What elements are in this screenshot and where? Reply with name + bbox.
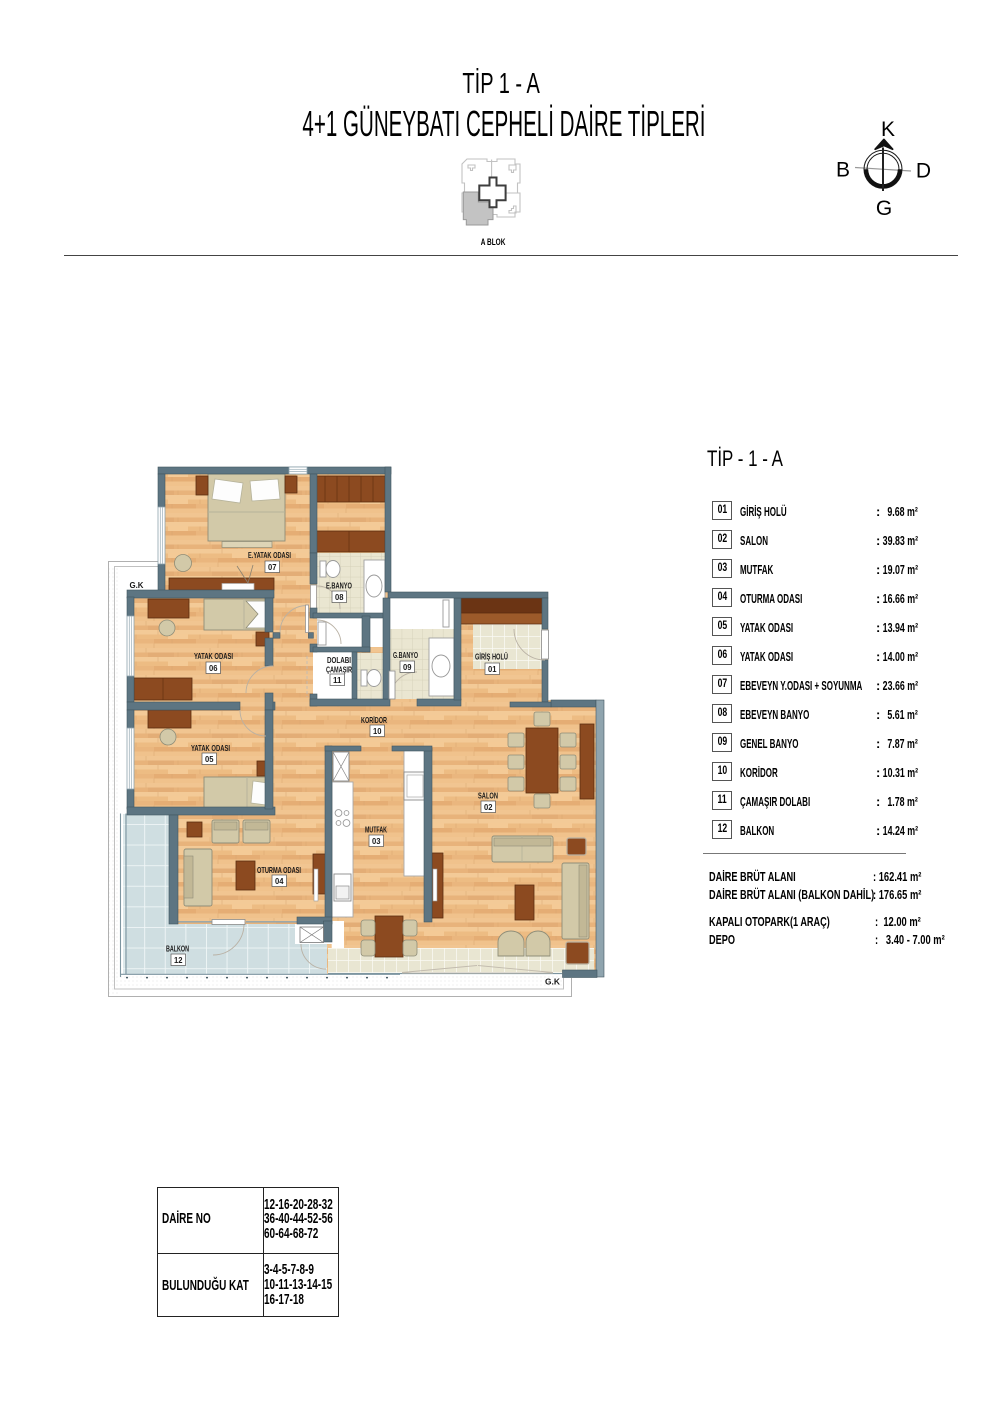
svg-text:E.BANYO: E.BANYO bbox=[326, 581, 352, 591]
svg-text:G.K: G.K bbox=[130, 580, 145, 590]
svg-text:10: 10 bbox=[373, 727, 382, 736]
svg-text:G.K: G.K bbox=[545, 977, 561, 987]
svg-text:MUTFAK: MUTFAK bbox=[365, 825, 388, 835]
svg-text:YATAK ODASI: YATAK ODASI bbox=[194, 651, 233, 661]
svg-text:KORİDOR: KORİDOR bbox=[361, 715, 387, 725]
svg-text:07: 07 bbox=[268, 563, 277, 572]
svg-text:01: 01 bbox=[488, 665, 497, 674]
svg-text:DOLABI: DOLABI bbox=[327, 655, 351, 665]
svg-text:08: 08 bbox=[335, 593, 344, 602]
svg-text:B: B bbox=[836, 159, 850, 182]
svg-text:11: 11 bbox=[333, 676, 342, 685]
svg-text:K: K bbox=[881, 118, 895, 141]
svg-text:E.YATAK ODASI: E.YATAK ODASI bbox=[248, 550, 291, 560]
svg-text:04: 04 bbox=[275, 877, 284, 886]
svg-text:D: D bbox=[916, 160, 931, 183]
svg-text:09: 09 bbox=[403, 663, 412, 672]
svg-text:05: 05 bbox=[205, 755, 214, 764]
svg-text:12: 12 bbox=[174, 956, 183, 965]
svg-text:G: G bbox=[876, 197, 892, 220]
svg-text:GİRİŞ HOLÜ: GİRİŞ HOLÜ bbox=[475, 652, 508, 662]
svg-text:03: 03 bbox=[372, 837, 381, 846]
svg-text:G.BANYO: G.BANYO bbox=[393, 650, 418, 660]
svg-text:OTURMA ODASI: OTURMA ODASI bbox=[257, 865, 301, 875]
svg-text:BALKON: BALKON bbox=[166, 944, 189, 954]
svg-text:ÇAMAŞIR: ÇAMAŞIR bbox=[326, 665, 352, 675]
svg-text:YATAK ODASI: YATAK ODASI bbox=[191, 743, 230, 753]
svg-text:02: 02 bbox=[484, 803, 493, 812]
svg-text:06: 06 bbox=[209, 664, 218, 673]
svg-text:SALON: SALON bbox=[478, 791, 498, 801]
